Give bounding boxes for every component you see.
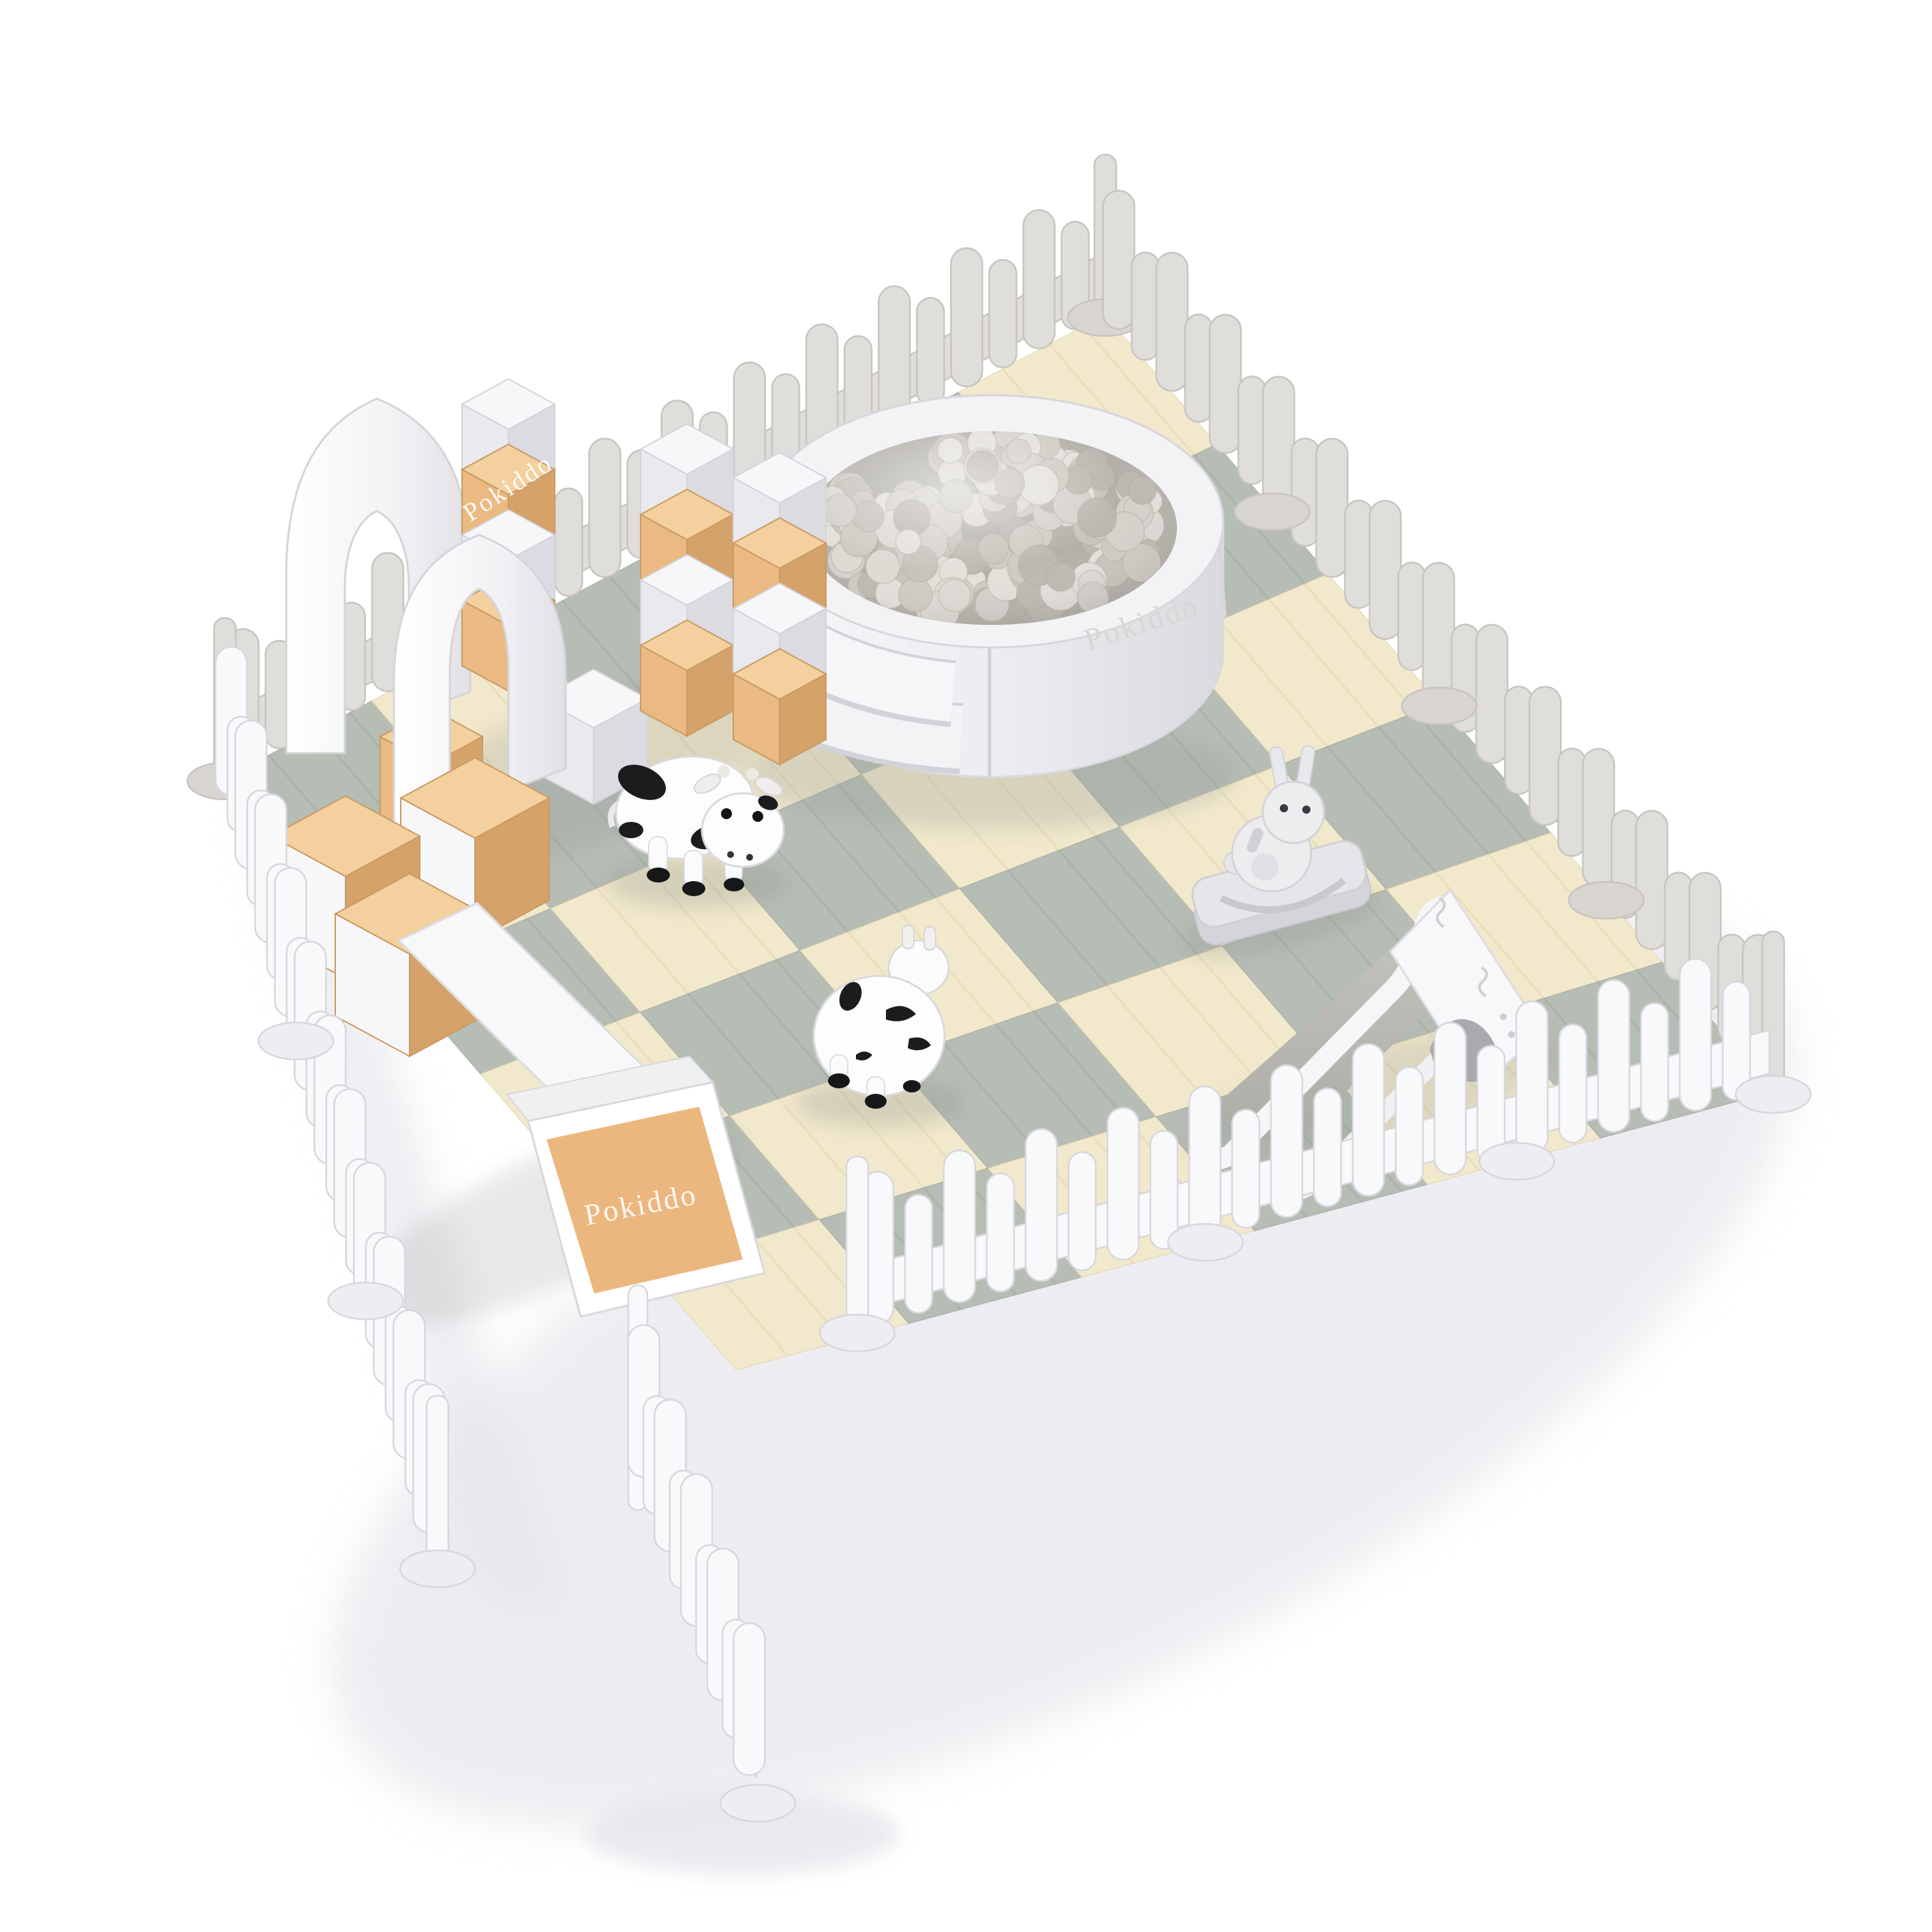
bunny-eye-left <box>1280 804 1288 812</box>
cow2-hoof-mid <box>865 1094 887 1109</box>
fence-foot <box>1235 493 1310 530</box>
cow2-hoof-left <box>828 1073 850 1088</box>
fence-picket <box>734 1623 765 1775</box>
fence-picket <box>1314 1088 1341 1207</box>
cow1-nostril-right <box>746 854 753 861</box>
fence-picket <box>1516 1001 1548 1153</box>
fence-picket <box>951 248 982 386</box>
fence-picket <box>1505 686 1532 794</box>
fence-picket <box>1107 1107 1139 1259</box>
cow1-nostril-left <box>727 851 734 858</box>
fence-picket <box>990 260 1017 367</box>
fence-foot <box>720 1785 795 1822</box>
fence-picket <box>1398 562 1426 670</box>
fence-picket <box>1636 811 1668 949</box>
fence-picket <box>1476 625 1507 763</box>
fence-picket <box>1232 1109 1259 1228</box>
cow1-horn-left <box>718 765 730 778</box>
fence-picket <box>1026 1129 1057 1281</box>
ball-pile-light <box>806 431 1177 625</box>
fence-picket <box>1069 1152 1096 1271</box>
fence-foot <box>400 1550 475 1587</box>
fence-picket <box>1680 959 1711 1111</box>
fence-picket <box>1435 1022 1466 1174</box>
fence-picket <box>1345 500 1373 608</box>
fence-picket <box>1423 563 1454 701</box>
fence-picket <box>1024 210 1055 348</box>
fence-foot <box>820 1315 895 1351</box>
fence-picket <box>1103 191 1135 329</box>
fence-picket <box>1156 253 1188 391</box>
fence-foot <box>1168 1224 1243 1261</box>
cow1-eye-right <box>752 811 763 822</box>
fence-picket <box>1396 1067 1423 1186</box>
fence-foot <box>258 1022 333 1059</box>
cow1-spot-3 <box>619 822 643 838</box>
fence-picket <box>1598 980 1629 1132</box>
fence-foot <box>1736 1076 1811 1113</box>
cow1-hoof-3 <box>724 878 744 891</box>
fence-picket <box>1210 315 1241 453</box>
bunny-eye-right <box>1302 806 1310 814</box>
fence-picket <box>555 489 582 596</box>
soft-block-tower-b <box>641 424 733 736</box>
cow2-ear-left <box>902 925 914 949</box>
fence-picket <box>1558 748 1585 856</box>
cow1-horn-right <box>746 768 758 780</box>
fence-post <box>427 1396 448 1565</box>
fence-picket <box>1583 749 1614 887</box>
fence-picket <box>1132 252 1159 360</box>
cow2-ear-right <box>924 927 936 950</box>
fence-picket <box>1271 1065 1302 1217</box>
fence-post <box>846 1156 868 1329</box>
fence-picket <box>589 439 620 577</box>
slide-bolt-1 <box>1500 1013 1507 1020</box>
fence-picket <box>1529 687 1561 825</box>
cow1-hoof-1 <box>647 868 670 883</box>
cow1-leg-2 <box>684 850 703 886</box>
tower-cube-tan <box>733 649 826 765</box>
fence-picket <box>1370 501 1401 639</box>
fence-picket <box>917 298 944 405</box>
fence-picket <box>987 1174 1014 1292</box>
cow1-hoof-2 <box>682 881 705 896</box>
fence-picket <box>1185 314 1212 422</box>
fence-picket <box>1559 1024 1586 1143</box>
fence-foot <box>1402 688 1477 724</box>
fence-picket <box>1189 1086 1221 1238</box>
bunny-belly <box>1251 853 1278 880</box>
fence-picket <box>1316 439 1347 577</box>
fence-picket <box>1641 1003 1668 1122</box>
fence-foot <box>328 1283 403 1319</box>
soft-block-tower-c <box>733 453 826 765</box>
fence-picket <box>1150 1131 1178 1249</box>
product-render-image: Pokiddo Pokiddo Pokiddo <box>0 0 1932 1932</box>
fence-picket <box>1238 376 1266 484</box>
fence-foot <box>1569 882 1644 919</box>
cow1-leg-1 <box>649 837 667 872</box>
slide-bolt-2 <box>1508 1031 1515 1038</box>
fence-foot <box>1479 1143 1554 1180</box>
scene-svg: Pokiddo Pokiddo Pokiddo <box>0 0 1932 1932</box>
cow2-hoof-right <box>903 1080 921 1092</box>
bunny-head <box>1263 782 1324 843</box>
fence-picket <box>1353 1044 1384 1196</box>
cow1-eye-left <box>721 808 732 819</box>
tower-cube-tan <box>641 620 733 736</box>
fence-picket <box>905 1195 932 1313</box>
fence-picket <box>944 1150 975 1302</box>
fence-picket <box>1291 438 1319 546</box>
